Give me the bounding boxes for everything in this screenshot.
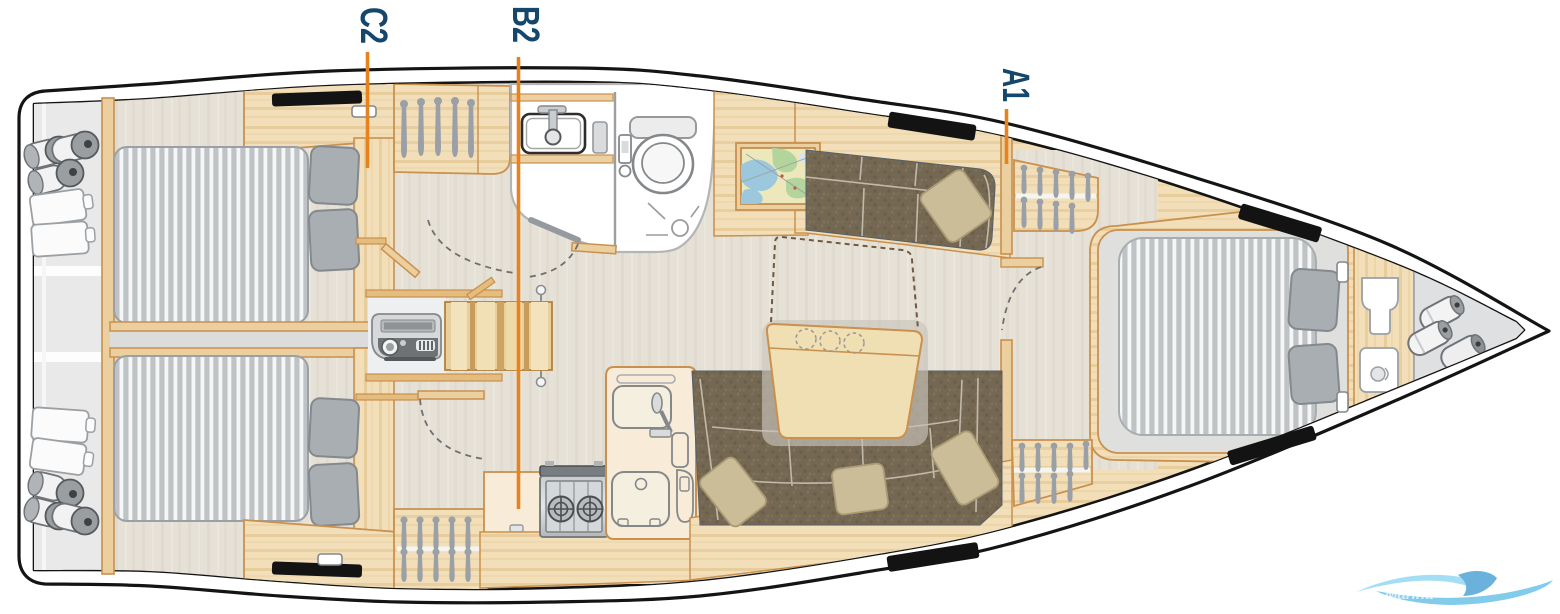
svg-text:B2: B2 [504,6,546,43]
svg-text:C2: C2 [352,7,394,44]
svg-text:A1: A1 [994,68,1036,102]
svg-text:Marina: Marina [1385,586,1433,603]
